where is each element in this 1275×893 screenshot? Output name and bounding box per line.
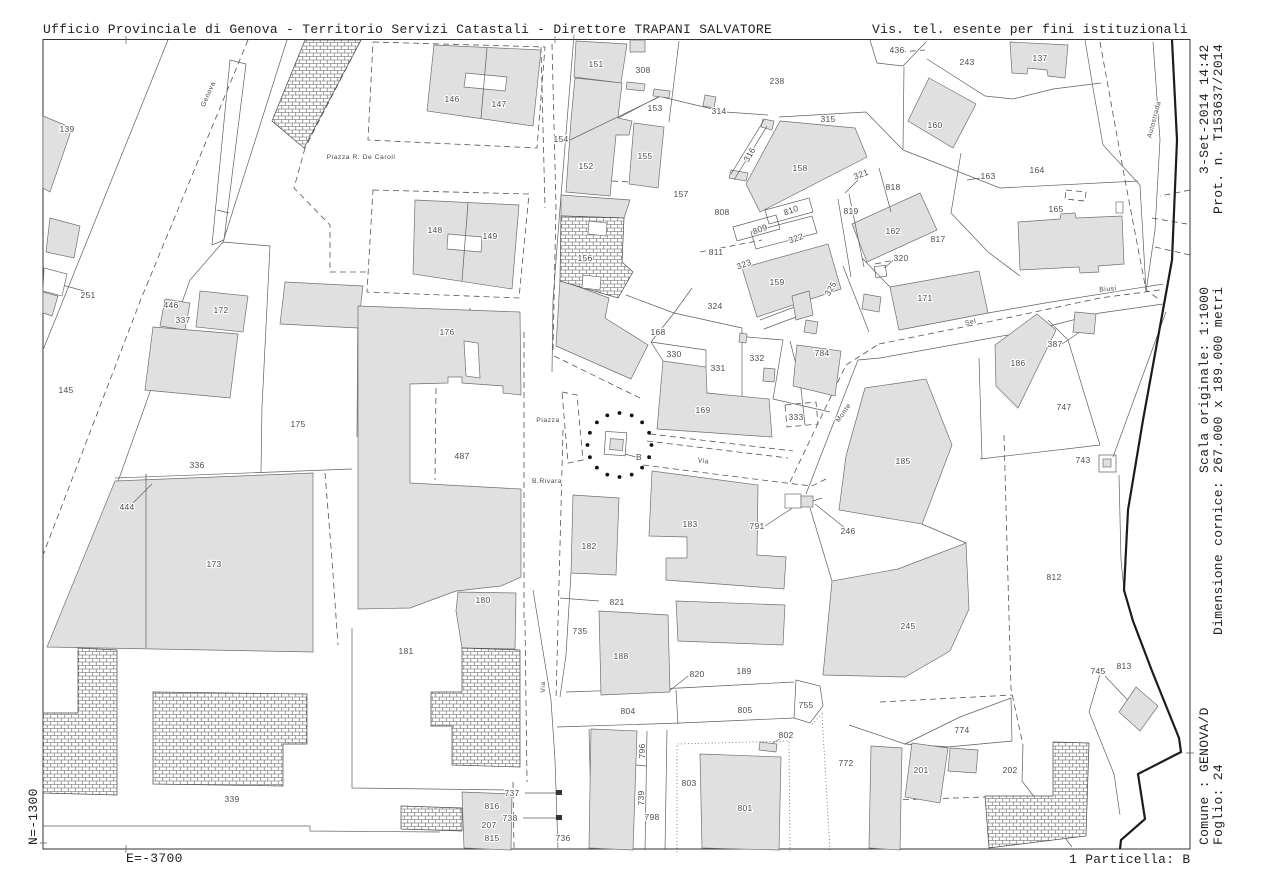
svg-text:251: 251	[80, 290, 95, 300]
svg-text:Comune : GENOVA/D: Comune : GENOVA/D	[1197, 707, 1212, 845]
svg-text:446: 446	[163, 300, 178, 310]
svg-text:819: 819	[843, 206, 858, 216]
svg-text:436: 436	[889, 45, 904, 55]
svg-text:180: 180	[475, 595, 490, 605]
svg-text:813: 813	[1116, 661, 1131, 671]
svg-text:791: 791	[749, 521, 764, 531]
svg-text:238: 238	[769, 76, 784, 86]
svg-text:Ufficio Provinciale di Genova: Ufficio Provinciale di Genova - Territor…	[43, 22, 772, 37]
svg-text:201: 201	[913, 765, 928, 775]
svg-text:774: 774	[954, 725, 969, 735]
svg-text:739: 739	[636, 790, 646, 805]
svg-text:1 Particella: B: 1 Particella: B	[1069, 852, 1191, 867]
svg-text:186: 186	[1010, 358, 1025, 368]
svg-text:3-Set-2014 14:42: 3-Set-2014 14:42	[1197, 44, 1212, 174]
svg-text:172: 172	[213, 305, 228, 315]
svg-text:146: 146	[444, 94, 459, 104]
svg-text:160: 160	[927, 120, 942, 130]
svg-text:809: 809	[751, 222, 769, 237]
svg-text:246: 246	[840, 526, 855, 536]
svg-text:331: 331	[710, 363, 725, 373]
svg-text:156: 156	[577, 253, 592, 263]
svg-text:816: 816	[484, 801, 499, 811]
svg-text:207: 207	[481, 820, 496, 830]
svg-text:Vis. tel. esente per fini isti: Vis. tel. esente per fini istituzionali	[872, 22, 1188, 37]
svg-text:165: 165	[1048, 204, 1063, 214]
svg-text:811: 811	[709, 247, 723, 257]
svg-text:164: 164	[1029, 165, 1044, 175]
svg-text:169: 169	[695, 405, 710, 415]
svg-text:818: 818	[885, 182, 900, 192]
svg-text:805: 805	[737, 705, 752, 715]
svg-text:308: 308	[635, 65, 650, 75]
svg-text:487: 487	[454, 451, 469, 461]
svg-text:Autostrada: Autostrada	[1146, 100, 1163, 138]
svg-text:158: 158	[792, 163, 807, 173]
svg-text:155: 155	[637, 151, 652, 161]
svg-text:153: 153	[647, 103, 662, 113]
svg-text:181: 181	[398, 646, 413, 656]
svg-text:803: 803	[681, 778, 696, 788]
svg-text:168: 168	[650, 327, 665, 337]
svg-text:315: 315	[820, 114, 835, 124]
svg-text:737: 737	[504, 788, 519, 798]
svg-text:747: 747	[1056, 402, 1071, 412]
svg-text:821: 821	[609, 597, 624, 607]
svg-text:137: 137	[1032, 53, 1047, 63]
svg-text:320: 320	[893, 253, 908, 263]
svg-text:Scala originale: 1:1000: Scala originale: 1:1000	[1197, 287, 1212, 473]
svg-text:444: 444	[119, 502, 134, 512]
svg-text:163: 163	[980, 171, 995, 181]
svg-text:812: 812	[1046, 572, 1061, 582]
svg-text:175: 175	[290, 419, 305, 429]
svg-text:Genova: Genova	[200, 81, 217, 108]
svg-text:339: 339	[224, 794, 239, 804]
svg-text:738: 738	[502, 813, 517, 823]
svg-text:322: 322	[787, 231, 805, 246]
svg-text:817: 817	[930, 234, 945, 244]
svg-text:243: 243	[959, 57, 974, 67]
svg-text:321: 321	[852, 167, 870, 182]
svg-text:B.Rivara: B.Rivara	[532, 478, 562, 485]
svg-text:183: 183	[682, 519, 697, 529]
svg-text:387: 387	[1047, 339, 1062, 349]
svg-text:148: 148	[427, 225, 442, 235]
svg-text:784: 784	[814, 348, 829, 358]
svg-text:337: 337	[175, 315, 190, 325]
svg-text:Sel: Sel	[964, 318, 977, 327]
svg-text:745: 745	[1090, 666, 1105, 676]
svg-text:B: B	[636, 452, 642, 462]
svg-text:149: 149	[482, 231, 497, 241]
svg-text:173: 173	[206, 559, 221, 569]
svg-text:736: 736	[555, 833, 570, 843]
svg-text:157: 157	[673, 189, 688, 199]
svg-text:151: 151	[588, 59, 603, 69]
svg-text:820: 820	[689, 669, 704, 679]
svg-text:314: 314	[711, 106, 726, 116]
svg-text:185: 185	[895, 456, 910, 466]
svg-text:176: 176	[439, 327, 454, 337]
svg-text:171: 171	[917, 293, 932, 303]
svg-text:Dimensione cornice: 267.000 x: Dimensione cornice: 267.000 x 189.000 me…	[1211, 287, 1226, 635]
svg-text:188: 188	[613, 651, 628, 661]
svg-text:336: 336	[189, 460, 204, 470]
svg-text:162: 162	[885, 226, 900, 236]
svg-text:735: 735	[572, 626, 587, 636]
svg-text:810: 810	[782, 203, 800, 218]
svg-text:139: 139	[59, 124, 74, 134]
svg-text:245: 245	[900, 621, 915, 631]
svg-text:804: 804	[620, 706, 635, 716]
svg-text:808: 808	[714, 207, 729, 217]
svg-text:182: 182	[581, 541, 596, 551]
svg-text:743: 743	[1075, 455, 1090, 465]
svg-text:798: 798	[644, 812, 659, 822]
svg-text:E=-3700: E=-3700	[126, 851, 183, 866]
svg-text:Prot. n. T153637/2014: Prot. n. T153637/2014	[1211, 44, 1226, 214]
svg-text:772: 772	[838, 758, 853, 768]
svg-text:145: 145	[58, 385, 73, 395]
svg-text:159: 159	[769, 277, 784, 287]
svg-text:324: 324	[707, 301, 722, 311]
svg-text:154: 154	[553, 134, 568, 144]
svg-text:189: 189	[736, 666, 751, 676]
svg-text:152: 152	[578, 161, 593, 171]
svg-text:N=-1300: N=-1300	[26, 788, 41, 845]
svg-text:202: 202	[1002, 765, 1017, 775]
svg-text:Foglio: 24: Foglio: 24	[1211, 764, 1226, 845]
svg-text:Piazza R. De Caroli: Piazza R. De Caroli	[327, 154, 396, 161]
svg-text:Biusi: Biusi	[1099, 285, 1117, 293]
svg-text:316: 316	[741, 145, 757, 163]
svg-text:Via: Via	[540, 681, 547, 692]
svg-text:Piazza: Piazza	[536, 417, 559, 424]
svg-text:796: 796	[637, 743, 647, 758]
svg-text:147: 147	[491, 99, 506, 109]
svg-text:755: 755	[798, 700, 813, 710]
svg-text:333: 333	[788, 412, 803, 422]
svg-text:802: 802	[778, 730, 793, 740]
svg-text:801: 801	[737, 803, 752, 813]
svg-text:815: 815	[484, 833, 499, 843]
svg-text:Via: Via	[697, 457, 709, 465]
svg-text:332: 332	[749, 353, 764, 363]
svg-text:330: 330	[666, 349, 681, 359]
